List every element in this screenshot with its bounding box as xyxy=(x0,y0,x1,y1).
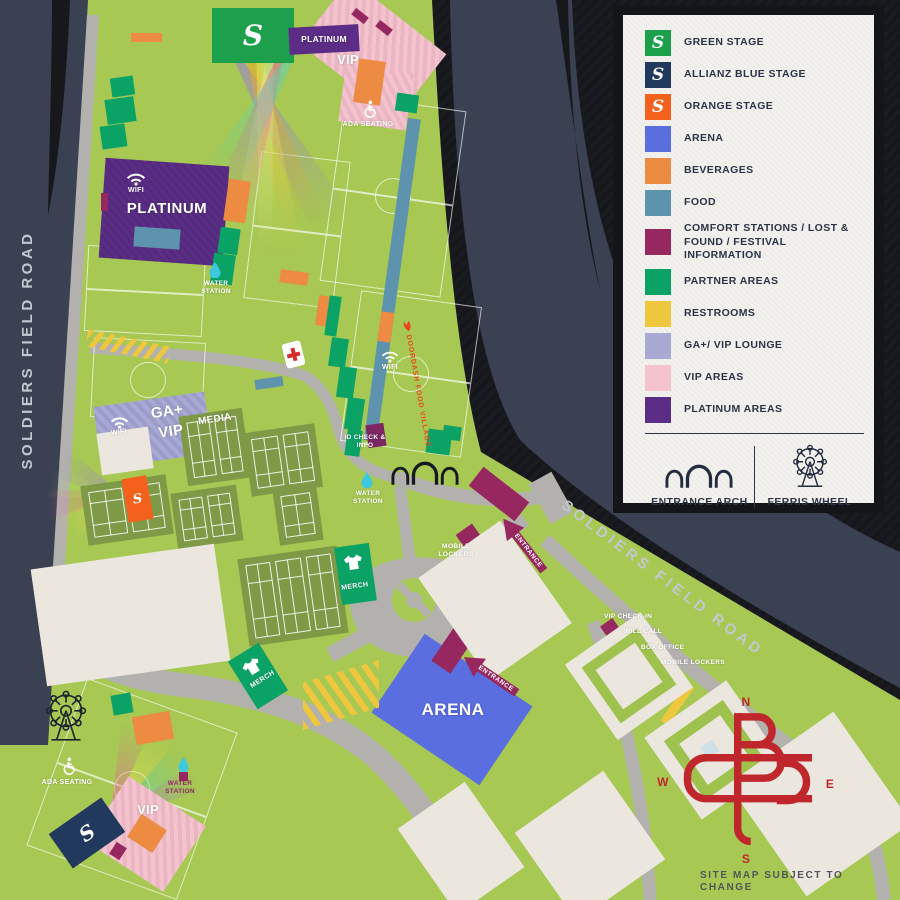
orange-stage-swatch: S xyxy=(645,94,671,120)
legend-label: ALLIANZ BLUE STAGE xyxy=(684,68,806,82)
legend-row-food: FOOD xyxy=(645,190,864,216)
platinum-small-label: PLATINUM xyxy=(292,34,356,44)
ada-icon xyxy=(361,100,377,118)
legend-row-blue-stage: S ALLIANZ BLUE STAGE xyxy=(645,62,864,88)
legend-label: PLATINUM AREAS xyxy=(684,403,782,417)
id-check-label: ID CHECK & INFO xyxy=(340,434,390,450)
vip-top-label: VIP xyxy=(330,52,366,68)
box-office-label: BOX OFFICE xyxy=(641,644,697,652)
partner-area xyxy=(104,96,136,125)
partner-area xyxy=(217,227,240,256)
legend-label: COMFORT STATIONS / LOST & FOUND / FESTIV… xyxy=(684,222,864,263)
partner-area xyxy=(442,425,462,441)
green-stage-swatch: S xyxy=(645,30,671,56)
legend-row-platinum: PLATINUM AREAS xyxy=(645,397,864,423)
legend-label: BEVERAGES xyxy=(684,164,754,178)
legend-label: ORANGE STAGE xyxy=(684,100,773,114)
ferris-wheel-icon xyxy=(789,444,831,490)
legend-row-ga-vip: GA+/ VIP LOUNGE xyxy=(645,333,864,359)
tennis-courts xyxy=(272,484,323,546)
partner-area xyxy=(110,692,133,715)
entrance-arch-icon xyxy=(388,460,462,488)
legend-label: RESTROOMS xyxy=(684,307,755,321)
tennis-courts xyxy=(237,545,348,646)
beverage-stand xyxy=(131,33,162,42)
water-drop-icon xyxy=(209,262,221,278)
mobile-lockers-label: MOBILE LOCKERS xyxy=(426,543,486,559)
arena-swatch xyxy=(645,126,671,152)
compass-n: N xyxy=(738,695,754,709)
ga-vip-swatch xyxy=(645,333,671,359)
green-stage: S xyxy=(212,8,294,63)
legend-row-vip-areas: VIP AREAS xyxy=(645,365,864,391)
legend-footer: ENTRANCE ARCH FERRIS WHEEL xyxy=(645,433,864,510)
restrooms-swatch xyxy=(645,301,671,327)
water-station-label: WATER STATION xyxy=(192,280,240,296)
wifi-icon xyxy=(126,172,146,186)
compass-w: W xyxy=(655,775,671,789)
will-call-label: WILL CALL xyxy=(624,628,676,636)
vip-south-label: VIP xyxy=(128,802,168,818)
ada-seating-label: ADA SEATING xyxy=(34,779,100,787)
water-drop-icon xyxy=(361,472,373,488)
legend-panel: S GREEN STAGE S ALLIANZ BLUE STAGE S ORA… xyxy=(623,15,874,503)
stage-s-glyph: S xyxy=(645,94,671,120)
stage-s-glyph: S xyxy=(645,30,671,56)
road-label-left: SOLDIERS FIELD ROAD xyxy=(8,190,48,510)
wifi-label: WIFI xyxy=(376,364,404,372)
wifi-icon xyxy=(381,350,399,363)
vip-areas-swatch xyxy=(645,365,671,391)
wifi-label: WIFI xyxy=(122,187,150,195)
beverages-swatch xyxy=(645,158,671,184)
legend-label: GREEN STAGE xyxy=(684,36,764,50)
legend-row-comfort: COMFORT STATIONS / LOST & FOUND / FESTIV… xyxy=(645,222,864,263)
water-station-label: WATER STATION xyxy=(344,490,392,506)
comfort-swatch xyxy=(645,229,671,255)
partner-swatch xyxy=(645,269,671,295)
bc-compass-logo xyxy=(668,702,826,860)
tshirt-icon xyxy=(341,552,365,573)
legend-label: FOOD xyxy=(684,196,716,210)
ada-icon xyxy=(60,757,76,775)
mobile-lockers-label: MOBILE LOCKERS xyxy=(661,659,727,667)
food-swatch xyxy=(645,190,671,216)
arena-label: ARENA xyxy=(408,700,498,720)
platinum-swatch xyxy=(645,397,671,423)
legend-row-green-stage: S GREEN STAGE xyxy=(645,30,864,56)
legend-ferris-wheel: FERRIS WHEEL xyxy=(755,444,864,510)
doordash-logo-icon xyxy=(402,320,412,332)
legend-entrance-arch: ENTRANCE ARCH xyxy=(645,444,754,510)
ferris-wheel-label: FERRIS WHEEL xyxy=(768,496,852,510)
legend-row-arena: ARENA xyxy=(645,126,864,152)
legend-label: GA+/ VIP LOUNGE xyxy=(684,339,782,353)
compass-s: S xyxy=(738,852,754,866)
platinum-label: PLATINUM xyxy=(122,200,212,218)
comfort-station xyxy=(101,193,108,211)
map-legend: S GREEN STAGE S ALLIANZ BLUE STAGE S ORA… xyxy=(613,5,884,513)
entrance-arch-icon xyxy=(662,464,736,490)
compass-e: E xyxy=(822,777,838,791)
partner-area xyxy=(395,93,419,114)
legend-label: ARENA xyxy=(684,132,723,146)
festival-site-map: WIFI PLATINUM WATER STATION S PLATINUM V… xyxy=(0,0,900,900)
legend-label: PARTNER AREAS xyxy=(684,275,778,289)
disclaimer: SITE MAP SUBJECT TO CHANGE xyxy=(700,870,890,894)
partner-area xyxy=(100,123,128,149)
legend-row-restrooms: RESTROOMS xyxy=(645,301,864,327)
vip-check-in-label: VIP CHECK-IN xyxy=(604,613,666,621)
water-station-label: WATER STATION xyxy=(154,780,206,796)
entrance-arch-label: ENTRANCE ARCH xyxy=(651,496,747,510)
legend-row-orange-stage: S ORANGE STAGE xyxy=(645,94,864,120)
partner-area xyxy=(110,75,135,97)
stage-s-glyph: S xyxy=(645,62,671,88)
food-area xyxy=(133,226,180,249)
ada-seating-label: ADA SEATING xyxy=(336,121,400,129)
ferris-wheel-icon xyxy=(40,690,92,744)
green-stage-logo: S xyxy=(212,8,294,63)
legend-row-partner: PARTNER AREAS xyxy=(645,269,864,295)
blue-stage-swatch: S xyxy=(645,62,671,88)
legend-label: VIP AREAS xyxy=(684,371,744,385)
tennis-courts xyxy=(170,485,243,550)
legend-row-beverages: BEVERAGES xyxy=(645,158,864,184)
water-drop-icon xyxy=(178,757,189,772)
